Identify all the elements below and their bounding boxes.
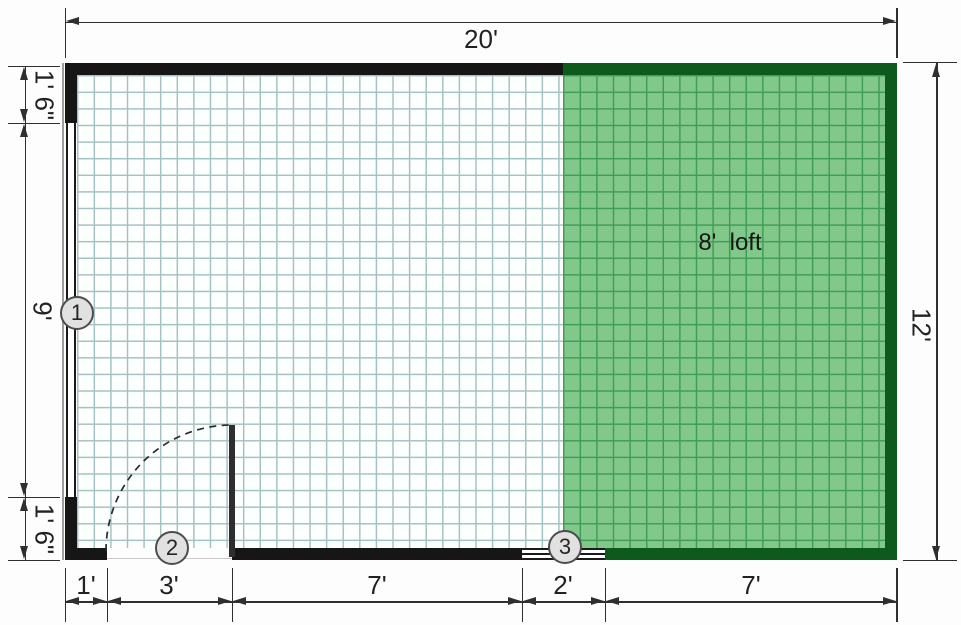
marker-1-number: 1 [71, 300, 83, 326]
marker-window-1: 1 [60, 296, 94, 330]
loft-label: 8' loft [698, 229, 761, 257]
door-swing-arc [0, 0, 961, 625]
floor-plan: 8' loft 1 2 3 20' 12' 1' 6" 9' [0, 0, 961, 625]
marker-door-2: 2 [155, 531, 189, 565]
marker-3-number: 3 [559, 534, 571, 560]
marker-window-3: 3 [548, 530, 582, 564]
marker-2-number: 2 [166, 535, 178, 561]
